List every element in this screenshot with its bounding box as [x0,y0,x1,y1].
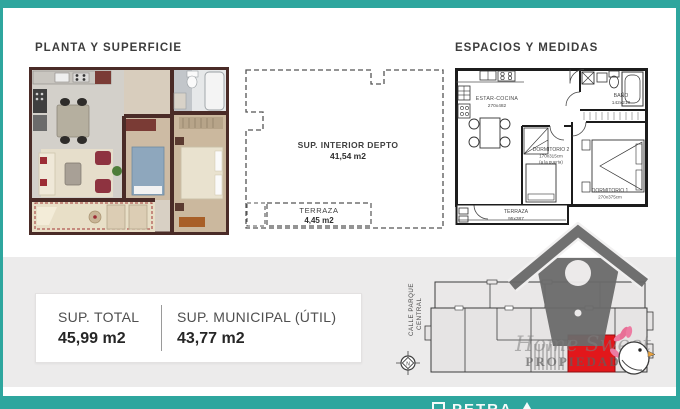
sofa-pillow [40,157,47,164]
terrace-decor [93,215,97,219]
compass-icon: N [396,351,420,375]
plant [112,166,122,176]
corner-dashed-box [247,203,265,226]
top-teal-bar [0,0,680,8]
total-surface-value: 45,99 m2 [58,330,161,348]
coffee-table [65,163,81,185]
municipal-surface-label: SUP. MUNICIPAL (ÚTIL) [177,309,336,325]
floor-hall [124,70,172,116]
heading-planta: PLANTA Y SUPERFICIE [35,42,182,54]
rendered-floorplan [29,67,229,235]
bathtub [205,72,224,110]
terrace-surface-value: 4,45 m2 [304,216,334,225]
dresser [179,217,205,227]
sofa-pillow [40,179,47,186]
toilet [187,76,197,88]
dims-estar-cocina: 270x482 [488,103,507,109]
total-surface-block: SUP. TOTAL 45,99 m2 [58,309,161,348]
terrace-surface-label: TERRAZA [299,206,338,215]
dims-bano: 142x210 [612,100,631,106]
vanity [174,93,186,109]
kitchen-cabinet [95,71,111,84]
label-terraza: TERRAZA [504,209,529,215]
label-dormitorio1: DORMITORIO 1 [592,188,629,194]
left-teal-border [0,0,3,409]
surface-summary-card: SUP. TOTAL 45,99 m2 SUP. MUNICIPAL (ÚTIL… [35,293,362,363]
bird-mascot-icon [608,326,656,382]
footer-logo-text: PETRA [452,402,513,409]
heading-espacios: ESPACIOS Y MEDIDAS [455,42,598,54]
municipal-surface-value: 43,77 m2 [177,330,336,348]
flyer-page: PLANTA Y SUPERFICIE ESPACIOS Y MEDIDAS [0,0,680,409]
footer-logo-square-icon [432,402,445,409]
right-teal-border [676,0,680,409]
card-divider [161,305,162,351]
total-surface-label: SUP. TOTAL [58,309,161,325]
kitchen-sink [55,73,69,82]
nightstand [175,137,184,145]
measured-floorplan: ESTAR-COCINA 270x482 BAÑO 142x210 DORMIT… [454,66,650,232]
bottom-teal-bar [0,396,680,409]
interior-surface-label: SUP. INTERIOR DEPTO [298,140,399,150]
kitchen-appliance [33,115,47,131]
bed-pillow [215,151,222,171]
dims-dormitorio1: 270x375cm [598,195,622,200]
stove [73,73,89,82]
oven-unit [33,89,47,113]
street-line1: CALLE PARQUE [408,283,415,336]
armchair [95,151,111,165]
bedroom2-pillows [134,186,162,194]
label-bano: BAÑO [614,92,629,99]
municipal-surface-block: SUP. MUNICIPAL (ÚTIL) 43,77 m2 [177,309,336,348]
bed-pillow [215,175,222,195]
dining-table [57,105,89,137]
armchair [95,179,111,193]
nightstand [175,203,184,211]
compass-n: N [406,362,410,368]
interior-surface-value: 41,54 m2 [330,151,366,161]
footer-logo-triangle-icon [520,402,534,409]
outer-walls [457,70,647,206]
bedroom2-wardrobe [126,119,156,131]
street-label: CALLE PARQUE CENTRAL [408,283,423,336]
dims-dormitorio2: 170x315cm [539,154,563,159]
lounger [107,205,125,229]
surface-outline-plan: SUP. INTERIOR DEPTO 41,54 m2 TERRAZA 4,4… [240,62,452,238]
note-dormitorio2: (a la puerta) [539,160,563,165]
footer-logo-partial: PETRA [432,402,534,409]
lounger [129,205,147,229]
label-estar-cocina: ESTAR-COCINA [476,96,519,102]
street-line2: CENTRAL [416,298,423,330]
label-dormitorio2: DORMITORIO 2 [533,147,570,153]
